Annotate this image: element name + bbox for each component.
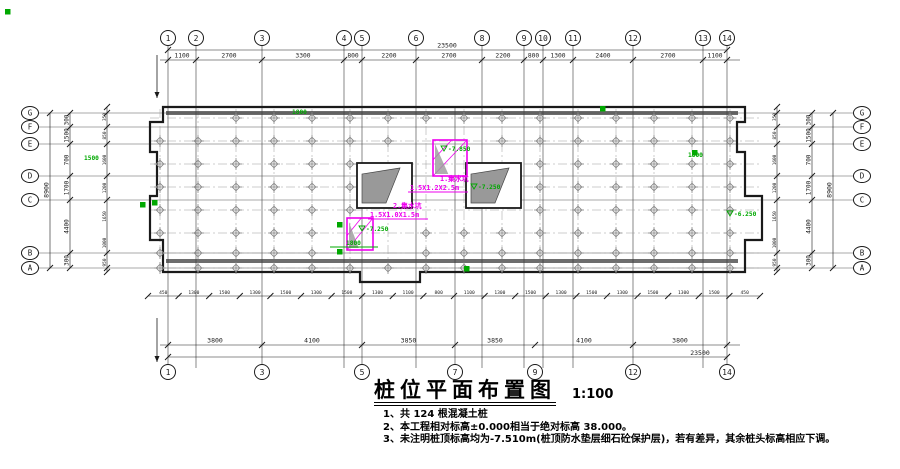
side-tick-label: 1600 xyxy=(772,154,778,165)
under-tick-label: 1300 xyxy=(556,290,567,296)
bottom-dim-label: 3800 xyxy=(672,337,688,345)
pile-symbol xyxy=(724,135,736,147)
axis-bubble-top-label: 12 xyxy=(628,34,638,43)
side-tick-label: 850 xyxy=(102,131,108,139)
pile-symbol xyxy=(154,158,166,170)
top-dim-label: 800 xyxy=(528,53,540,60)
top-dim-label: 1100 xyxy=(707,53,722,60)
sump-pit-label: 1.5X1.0X1.5m xyxy=(370,211,419,219)
side-tick-label: 350 xyxy=(772,113,778,121)
axis-bubble-bottom-label: 3 xyxy=(260,368,265,377)
pile-symbol xyxy=(610,247,622,259)
green-marker xyxy=(337,249,343,255)
bottom-dim-label: 3850 xyxy=(487,337,503,345)
axis-bubble-top-label: 6 xyxy=(414,34,419,43)
top-dim-label: 2700 xyxy=(660,53,675,60)
side-dim-label: 1500 xyxy=(64,128,71,143)
side-dim-label: 700 xyxy=(64,154,71,165)
pile-symbol xyxy=(686,204,698,216)
elevation-label: -7.250 xyxy=(366,226,389,233)
axis-bubble-letter-label: C xyxy=(28,196,33,205)
pile-symbol xyxy=(610,135,622,147)
top-dim-label: 3300 xyxy=(295,53,310,60)
top-dim-label: 2200 xyxy=(495,53,510,60)
axis-bubble-letter-label: G xyxy=(28,109,33,118)
top-total-label: 23500 xyxy=(437,42,457,50)
side-dim-label: 300 xyxy=(806,114,813,125)
axis-bubble-letter-label: F xyxy=(28,123,33,132)
green-marker xyxy=(337,222,343,228)
drawing-title: 桩位平面布置图 xyxy=(374,379,556,406)
side-total-label: 8900 xyxy=(43,182,51,198)
leader-arrow xyxy=(155,92,160,98)
under-tick-label: 1300 xyxy=(678,290,689,296)
pile-symbol xyxy=(306,181,318,193)
axis-bubble-letter-label: F xyxy=(860,123,865,132)
pile-symbol xyxy=(154,204,166,216)
under-tick-label: 1500 xyxy=(586,290,597,296)
green-dim-label: 1800 xyxy=(292,109,307,116)
under-tick-label: 1300 xyxy=(372,290,383,296)
side-dim-label: 1700 xyxy=(64,180,71,195)
interior-wall-bar xyxy=(166,259,738,263)
under-tick-label: 1100 xyxy=(403,290,414,296)
pile-symbol xyxy=(382,262,394,274)
side-dim-label: 700 xyxy=(806,154,813,165)
axis-bubble-letter-label: D xyxy=(860,172,865,181)
pile-symbol xyxy=(230,135,242,147)
leader-arrow xyxy=(155,356,160,362)
green-marker xyxy=(692,150,698,156)
under-tick-label: 1100 xyxy=(464,290,475,296)
under-tick-label: 1500 xyxy=(709,290,720,296)
side-dim-label: 1700 xyxy=(806,180,813,195)
note-line-2: 2、本工程相对标高±0.000相当于绝对标高 38.000。 xyxy=(383,422,835,435)
under-tick-label: 1500 xyxy=(647,290,658,296)
pile-symbol xyxy=(686,227,698,239)
pile-symbol xyxy=(268,247,280,259)
side-dim-label: 1500 xyxy=(806,128,813,143)
pile-symbol xyxy=(648,247,660,259)
side-total-label: 8900 xyxy=(826,182,834,198)
axis-bubble-letter-label: D xyxy=(28,172,33,181)
axis-bubble-top-label: 13 xyxy=(698,34,708,43)
axis-bubble-bottom-label: 9 xyxy=(533,368,538,377)
under-tick-label: 1300 xyxy=(250,290,261,296)
top-dim-label: 1100 xyxy=(174,53,189,60)
pile-symbol xyxy=(534,135,546,147)
pile-symbol xyxy=(306,135,318,147)
pile-symbol xyxy=(724,247,736,259)
sump-pit-label: 1.5X1.2X2.5m xyxy=(410,184,459,192)
side-dim-label: 300 xyxy=(806,255,813,266)
side-tick-label: 1600 xyxy=(102,154,108,165)
pile-symbol xyxy=(192,247,204,259)
pile-symbol xyxy=(268,135,280,147)
top-dim-label: 2400 xyxy=(595,53,610,60)
building-outline xyxy=(150,107,762,282)
pile-symbol xyxy=(192,181,204,193)
axis-bubble-bottom-label: 14 xyxy=(722,368,732,377)
pile-symbol xyxy=(610,181,622,193)
axis-bubble-top-label: 5 xyxy=(360,34,365,43)
top-dim-label: 2700 xyxy=(221,53,236,60)
sump-pit-label: 2.集水坑 xyxy=(393,201,422,210)
pile-symbol xyxy=(230,204,242,216)
pile-symbol xyxy=(572,247,584,259)
pile-symbol xyxy=(306,247,318,259)
drawing-title-block: 桩位平面布置图 1:100 xyxy=(374,379,613,406)
pile-symbol xyxy=(610,204,622,216)
drawing-notes: 1、共 124 根混凝土桩 2、本工程相对标高±0.000相当于绝对标高 38.… xyxy=(383,409,835,447)
side-tick-label: 1200 xyxy=(772,182,778,193)
pile-symbol xyxy=(534,158,546,170)
axis-bubble-letter-label: E xyxy=(28,140,33,149)
green-dim-label: 1800 xyxy=(346,240,361,247)
bottom-total-label: 23500 xyxy=(690,349,710,357)
under-tick-label: 800 xyxy=(435,290,444,296)
under-tick-label: 1500 xyxy=(280,290,291,296)
pile-symbol xyxy=(534,247,546,259)
side-tick-label: 850 xyxy=(772,131,778,139)
side-dim-label: 4400 xyxy=(64,219,71,234)
under-tick-label: 1300 xyxy=(311,290,322,296)
side-dim-label: 4400 xyxy=(806,219,813,234)
under-tick-label: 1300 xyxy=(188,290,199,296)
under-tick-label: 450 xyxy=(159,290,168,296)
pile-symbol xyxy=(648,135,660,147)
pile-symbol xyxy=(686,181,698,193)
pile-symbol xyxy=(306,158,318,170)
pile-symbol xyxy=(724,158,736,170)
axis-bubble-top-label: 4 xyxy=(342,34,347,43)
sump-pit-slope xyxy=(435,144,448,174)
pile-symbol xyxy=(344,158,356,170)
side-tick-label: 350 xyxy=(102,113,108,121)
bottom-dim-label: 4100 xyxy=(576,337,592,345)
pile-symbol xyxy=(420,227,432,239)
side-dim-label: 300 xyxy=(64,255,71,266)
pile-symbol xyxy=(154,247,166,259)
pile-symbol xyxy=(306,204,318,216)
pile-symbol xyxy=(496,135,508,147)
pile-symbol xyxy=(534,204,546,216)
top-dim-label: 2200 xyxy=(381,53,396,60)
pile-symbol xyxy=(268,158,280,170)
pile-symbol xyxy=(192,158,204,170)
green-marker xyxy=(152,200,158,206)
axis-bubble-bottom-label: 1 xyxy=(166,368,171,377)
pile-symbol xyxy=(572,227,584,239)
pile-symbol xyxy=(154,227,166,239)
pile-symbol xyxy=(230,247,242,259)
axis-bubble-letter-label: G xyxy=(860,109,865,118)
side-dim-label: 300 xyxy=(64,114,71,125)
side-tick-label: 950 xyxy=(772,258,778,266)
interior-wall-bar xyxy=(166,111,738,115)
under-tick-label: 1500 xyxy=(219,290,230,296)
axis-bubble-top-label: 10 xyxy=(538,34,548,43)
pile-symbol xyxy=(610,227,622,239)
pile-symbol xyxy=(306,227,318,239)
pile-symbol xyxy=(648,204,660,216)
drawing-scale: 1:100 xyxy=(572,387,613,406)
pile-symbol xyxy=(344,181,356,193)
pile-symbol xyxy=(686,135,698,147)
green-dim-label: 1500 xyxy=(84,155,99,162)
pile-symbol xyxy=(230,181,242,193)
pile-symbol xyxy=(192,135,204,147)
pile-symbol xyxy=(154,181,166,193)
side-tick-label: 1650 xyxy=(772,211,778,222)
axis-bubble-top-label: 14 xyxy=(722,34,732,43)
axis-bubble-top-label: 9 xyxy=(522,34,527,43)
axis-bubble-top-label: 11 xyxy=(568,34,578,43)
pile-symbol xyxy=(724,227,736,239)
pile-symbol xyxy=(572,204,584,216)
bottom-dim-label: 4100 xyxy=(304,337,320,345)
pile-symbol xyxy=(344,204,356,216)
axis-bubble-bottom-label: 5 xyxy=(360,368,365,377)
pile-symbol xyxy=(268,227,280,239)
bottom-dim-label: 3800 xyxy=(207,337,223,345)
green-marker xyxy=(464,266,470,272)
pile-symbol xyxy=(610,158,622,170)
under-tick-label: 1500 xyxy=(525,290,536,296)
pile-symbol xyxy=(192,204,204,216)
pile-symbol xyxy=(686,158,698,170)
side-tick-label: 1000 xyxy=(102,237,108,248)
elevation-label: -7.250 xyxy=(478,184,501,191)
axis-bubble-letter-label: B xyxy=(28,249,33,258)
pile-symbol xyxy=(572,158,584,170)
cad-drawing-sheet: 1100270033008002200270022008001300240027… xyxy=(0,0,900,469)
pile-symbol xyxy=(648,227,660,239)
pile-symbol xyxy=(686,247,698,259)
pile-symbol xyxy=(420,247,432,259)
elevation-label: -7.850 xyxy=(448,146,471,153)
pile-symbol xyxy=(154,135,166,147)
pile-symbol xyxy=(534,181,546,193)
top-dim-label: 2700 xyxy=(441,53,456,60)
note-line-1: 1、共 124 根混凝土桩 xyxy=(383,409,835,422)
axis-bubble-top-label: 2 xyxy=(194,34,199,43)
axis-bubble-top-label: 8 xyxy=(480,34,485,43)
pile-symbol xyxy=(648,158,660,170)
pile-symbol xyxy=(458,227,470,239)
pile-symbol xyxy=(648,181,660,193)
axis-bubble-letter-label: A xyxy=(860,264,865,273)
green-marker xyxy=(140,202,146,208)
side-tick-label: 950 xyxy=(102,258,108,266)
pile-symbol xyxy=(344,135,356,147)
under-tick-label: 1300 xyxy=(617,290,628,296)
axis-bubble-top-label: 1 xyxy=(166,34,171,43)
axis-bubble-letter-label: B xyxy=(860,249,865,258)
under-tick-label: 450 xyxy=(741,290,750,296)
pile-symbol xyxy=(268,181,280,193)
under-tick-label: 1500 xyxy=(341,290,352,296)
side-tick-label: 1200 xyxy=(102,182,108,193)
pile-symbol xyxy=(572,181,584,193)
pile-symbol xyxy=(192,227,204,239)
top-dim-label: 800 xyxy=(347,53,359,60)
pile-symbol xyxy=(496,227,508,239)
axis-bubble-top-label: 3 xyxy=(260,34,265,43)
top-dim-label: 1300 xyxy=(550,53,565,60)
pile-symbol xyxy=(496,247,508,259)
note-line-3: 3、未注明桩顶标高均为-7.510m(桩顶防水垫层细石砼保护层)，若有差异，其余… xyxy=(383,434,835,447)
pile-symbol xyxy=(230,227,242,239)
under-tick-label: 1300 xyxy=(494,290,505,296)
pile-symbol xyxy=(572,135,584,147)
side-tick-label: 1000 xyxy=(772,237,778,248)
pile-symbol xyxy=(230,158,242,170)
side-tick-label: 1650 xyxy=(102,211,108,222)
pile-symbol xyxy=(534,227,546,239)
bottom-dim-label: 3850 xyxy=(401,337,417,345)
pile-symbol xyxy=(382,135,394,147)
axis-bubble-letter-label: E xyxy=(860,140,865,149)
axis-bubble-bottom-label: 12 xyxy=(628,368,638,377)
pile-symbol xyxy=(724,181,736,193)
pile-symbol xyxy=(268,204,280,216)
axis-bubble-bottom-label: 7 xyxy=(453,368,458,377)
axis-bubble-letter-label: C xyxy=(860,196,865,205)
axis-bubble-letter-label: A xyxy=(28,264,33,273)
green-marker xyxy=(5,9,11,15)
sump-pit-label: 1.集水坑 xyxy=(440,174,469,183)
elevation-label: -6.250 xyxy=(734,211,757,218)
green-marker xyxy=(600,106,606,112)
pile-symbol xyxy=(458,247,470,259)
